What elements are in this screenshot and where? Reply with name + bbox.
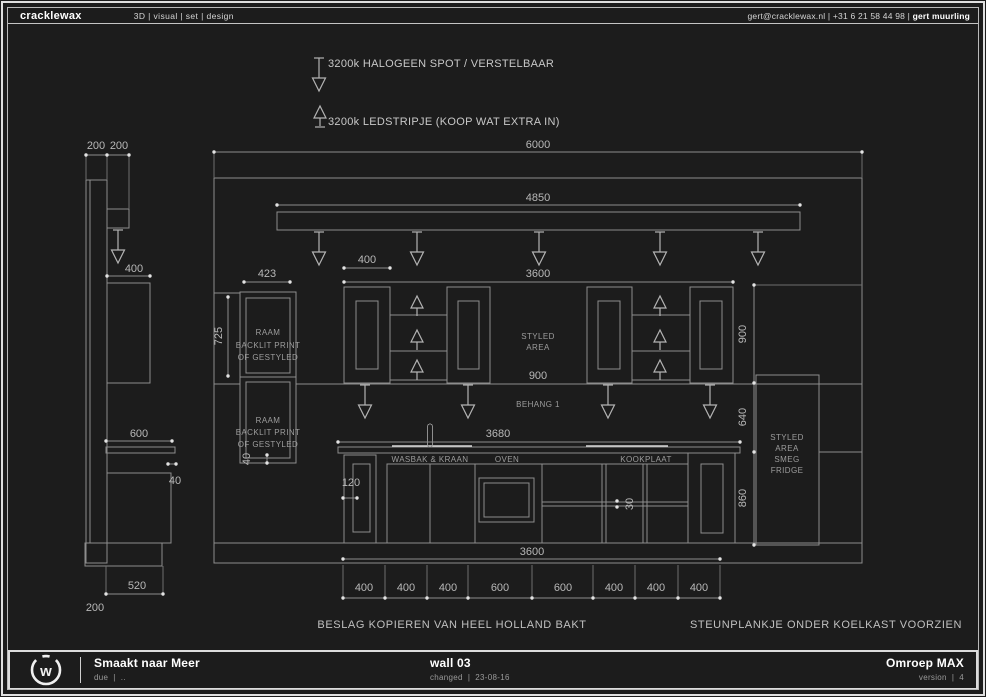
client-block: Omroep MAX version | 4 [886, 656, 964, 682]
dim-6000: 6000 [526, 139, 550, 151]
note-right: STEUNPLANKJE ONDER KOELKAST VOORZIEN [690, 619, 962, 631]
raam1-line2: BACKLIT PRINT [236, 341, 301, 350]
legend-halogen-arrow-icon [313, 58, 326, 91]
dim-900-right: 900 [737, 325, 749, 343]
side-view-dimensions [84, 153, 177, 595]
dim-side-600: 600 [130, 428, 148, 440]
wasbak-label: WASBAK & KRAAN [392, 455, 469, 464]
legend-halogen-label: 3200k HALOGEEN SPOT / VERSTELBAAR [328, 58, 554, 70]
dim-seg-5: 600 [554, 582, 572, 594]
dim-raam-40: 40 [241, 453, 253, 465]
dim-860-right: 860 [737, 489, 749, 507]
side-view-structure [85, 180, 175, 566]
dim-4850: 4850 [526, 192, 550, 204]
dim-seg-6: 400 [605, 582, 623, 594]
dim-423: 423 [258, 268, 276, 280]
company-logo-icon: w [24, 654, 68, 688]
client-name: Omroep MAX [886, 656, 964, 670]
changed-date: changed | 23-08-16 [430, 673, 510, 682]
dim-3600-upper: 3600 [526, 268, 550, 280]
dim-seg-8: 400 [690, 582, 708, 594]
dim-120-label: 120 [342, 477, 360, 489]
countertop [336, 424, 741, 453]
dim-seg-4: 600 [491, 582, 509, 594]
fridge-line4: FRIDGE [771, 466, 804, 475]
dim-side-200b: 200 [110, 140, 128, 152]
spot-arrow-icons [313, 232, 765, 265]
dim-side-200a: 200 [87, 140, 105, 152]
project-block: Smaakt naar Meer due | .. [94, 656, 200, 682]
title-block: w Smaakt naar Meer due | .. wall 03 chan… [8, 650, 978, 690]
fridge-outline [756, 375, 862, 545]
styled-area-line2: AREA [526, 343, 550, 352]
behang-label: BEHANG 1 [516, 400, 560, 409]
note-left: BESLAG KOPIEREN VAN HEEL HOLLAND BAKT [317, 619, 586, 631]
base-cabinets [344, 453, 735, 543]
raam-column [240, 292, 296, 463]
legend-ledstrip-arrow-icon [314, 106, 326, 127]
dim-3600-base: 3600 [520, 546, 544, 558]
fridge-line2: AREA [775, 444, 799, 453]
footer-divider [80, 657, 81, 683]
side-view-spot-arrow-icon [112, 230, 125, 263]
technical-drawing: 3200k HALOGEEN SPOT / VERSTELBAAR 3200k … [0, 0, 986, 697]
version-number: version | 4 [886, 673, 964, 682]
dim-30-label: 30 [624, 498, 636, 510]
fridge-line3: SMEG [774, 455, 799, 464]
sheet-name: wall 03 [430, 656, 510, 670]
sheet-block: wall 03 changed | 23-08-16 [430, 656, 510, 682]
dim-640-right: 640 [737, 408, 749, 426]
dim-120 [341, 496, 358, 499]
light-rail [275, 203, 801, 230]
dim-725: 725 [213, 327, 225, 345]
kookplaat-label: KOOKPLAAT [620, 455, 671, 464]
dim-400-door: 400 [358, 254, 376, 266]
dim-900-mid: 900 [529, 370, 547, 382]
dim-seg-3: 400 [439, 582, 457, 594]
dim-side-200c: 200 [86, 602, 104, 614]
dim-seg-2: 400 [397, 582, 415, 594]
dim-seg-7: 400 [647, 582, 665, 594]
logo-letter: w [39, 663, 52, 680]
dim-total-width [212, 150, 863, 178]
dim-side-400: 400 [125, 263, 143, 275]
dim-right-heights [752, 283, 755, 546]
drawing-sheet: cracklewax 3D | visual | set | design ge… [0, 0, 986, 697]
faucet-icon [428, 424, 433, 447]
styled-area-line1: STYLED [521, 332, 555, 341]
fridge-line1: STYLED [770, 433, 804, 442]
legend-ledstrip-label: 3200k LEDSTRIPJE (KOOP WAT EXTRA IN) [328, 116, 560, 128]
raam1-line3: OF GESTYLED [238, 353, 298, 362]
upper-cabinet-group-right [587, 287, 733, 383]
raam2-line2: BACKLIT PRINT [236, 428, 301, 437]
dim-3680: 3680 [486, 428, 510, 440]
dim-side-40: 40 [169, 475, 181, 487]
raam2-line1: RAAM [256, 416, 281, 425]
project-title: Smaakt naar Meer [94, 656, 200, 670]
oven-label: OVEN [495, 455, 519, 464]
upper-cabinet-group-left [344, 287, 490, 383]
raam1-line1: RAAM [256, 328, 281, 337]
dim-side-520: 520 [128, 580, 146, 592]
dim-seg-1: 400 [355, 582, 373, 594]
raam2-line3: OF GESTYLED [238, 440, 298, 449]
dim-30 [615, 499, 618, 508]
due-date: due | .. [94, 673, 200, 682]
